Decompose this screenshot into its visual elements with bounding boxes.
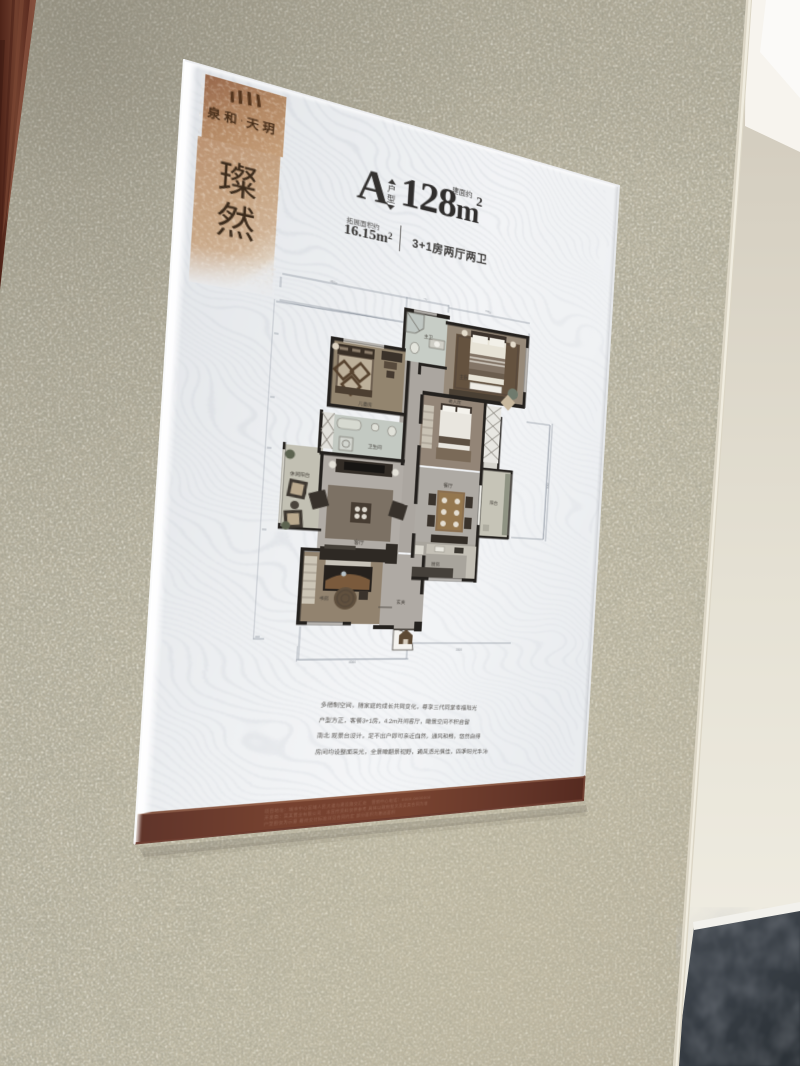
svg-text:3300: 3300 (456, 648, 463, 652)
svg-text:厨房: 厨房 (431, 561, 440, 568)
svg-text:书房: 书房 (319, 595, 329, 602)
svg-text:玄关: 玄关 (396, 599, 405, 605)
svg-text:客厅: 客厅 (354, 538, 365, 546)
svg-text:4050: 4050 (348, 660, 356, 664)
